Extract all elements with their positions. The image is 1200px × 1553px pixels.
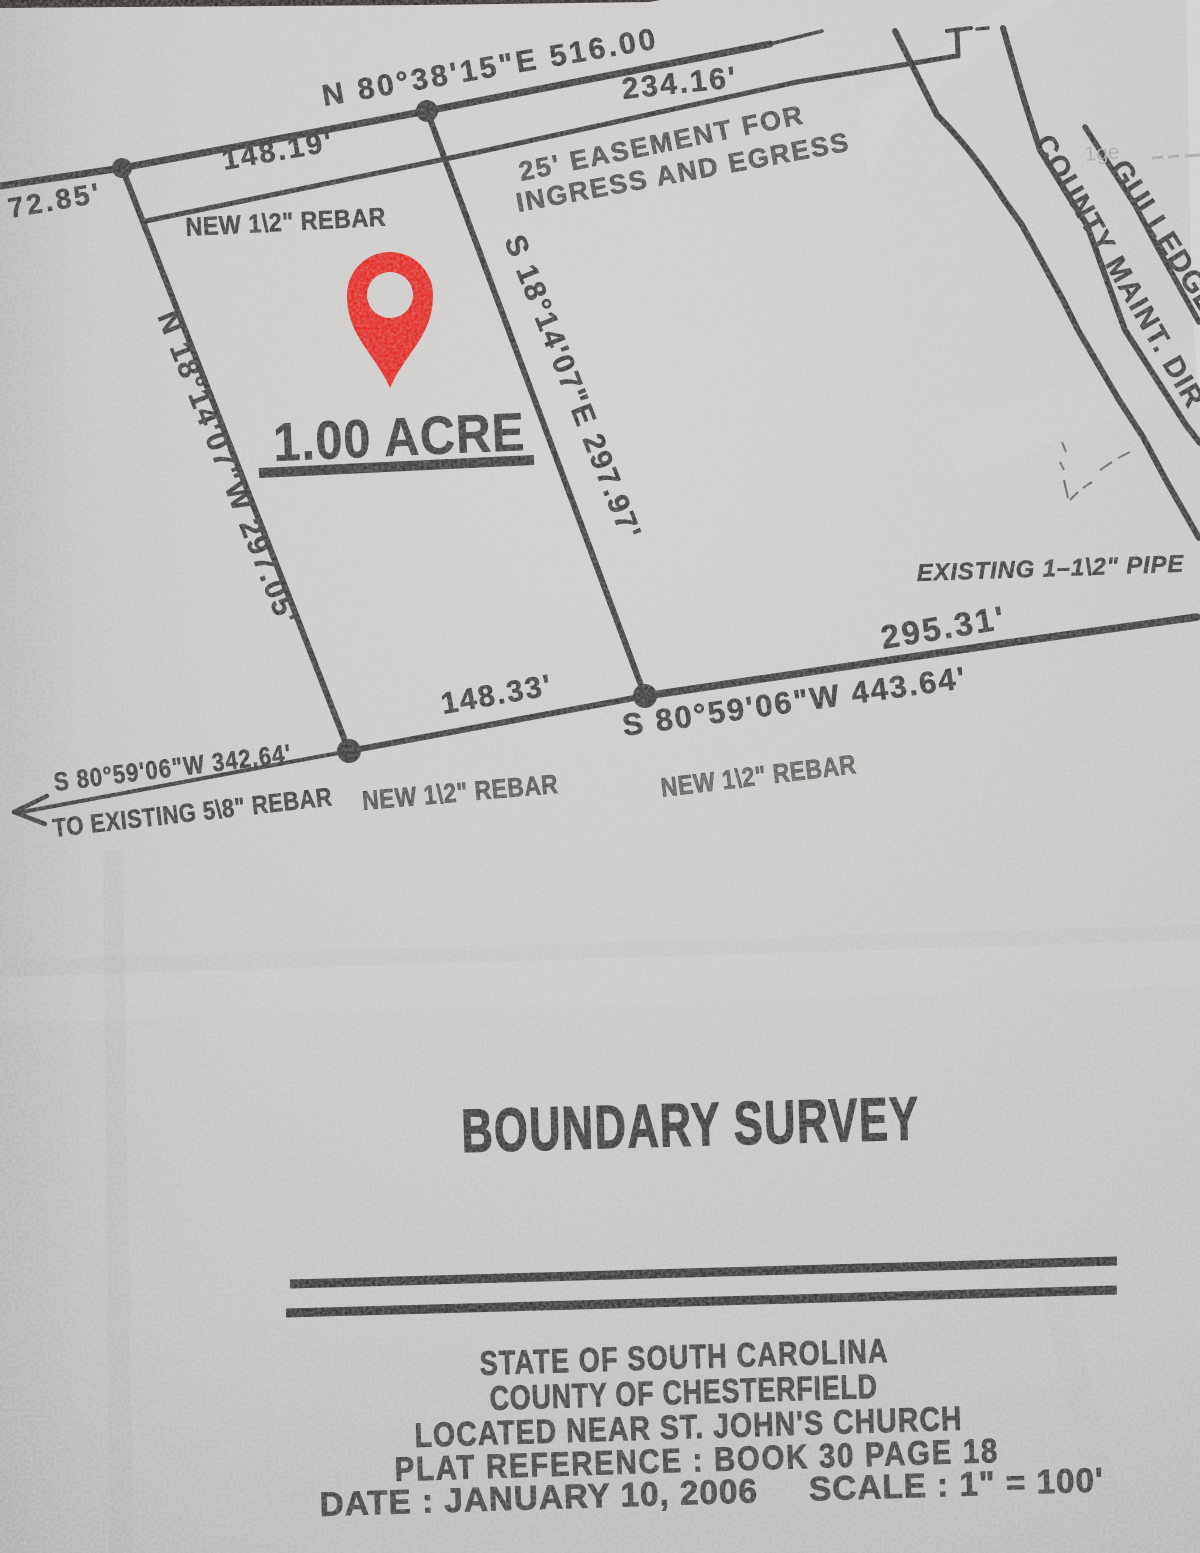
- svg-text:1g​e: 1g​e: [1084, 141, 1121, 166]
- svg-text:BOUNDARY SURVEY: BOUNDARY SURVEY: [460, 1085, 920, 1166]
